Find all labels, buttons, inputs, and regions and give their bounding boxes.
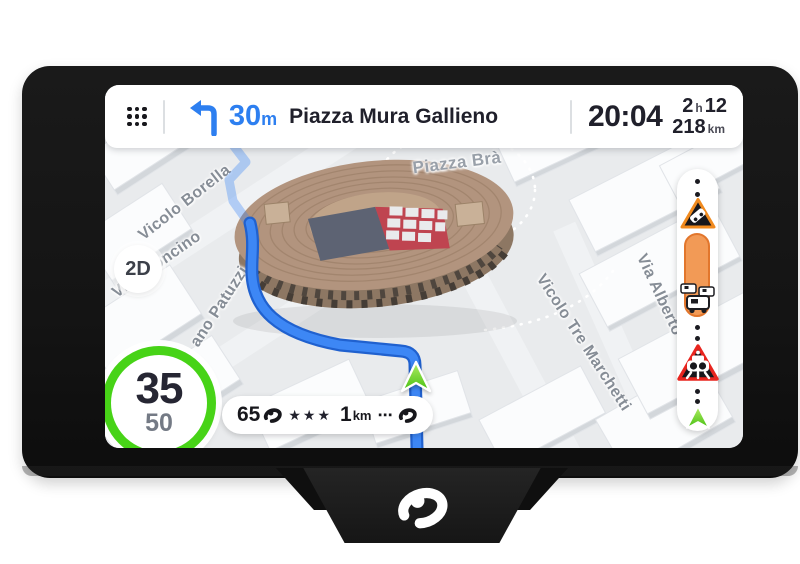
eta-distance: 218km	[672, 117, 727, 138]
alert-speed-limit: 65	[237, 403, 260, 427]
current-speed: 35	[136, 370, 183, 407]
confirmation-stars: ★★★	[288, 407, 332, 424]
clock: 20:04	[588, 100, 662, 134]
route-alert-bar[interactable]	[677, 169, 718, 431]
coyote-eye-icon	[397, 406, 418, 424]
alert-distance: 1	[340, 403, 352, 427]
eta-block: 2h12 218km	[672, 96, 727, 138]
next-street-name[interactable]: Piazza Mura Gallieno	[289, 105, 554, 129]
position-arrow-icon	[685, 405, 711, 430]
coyote-logo-icon	[393, 482, 451, 531]
turn-left-arrow-icon[interactable]	[187, 98, 221, 136]
grid-menu-icon[interactable]	[127, 107, 147, 127]
alert-distance-unit: km	[353, 408, 372, 423]
eta-duration: 2h12	[682, 96, 727, 117]
speed-limit: 50	[145, 411, 173, 436]
route-dot	[695, 179, 700, 184]
divider	[570, 100, 572, 134]
traffic-jam-icon	[678, 281, 718, 315]
more-alerts-dots: ⋯	[378, 406, 394, 424]
divider	[163, 100, 165, 134]
map-view-2d-button[interactable]: 2D	[114, 245, 162, 293]
alert-pill[interactable]: 65 ★★★ 1 km ⋯	[222, 396, 433, 434]
device-mount-base	[293, 468, 551, 543]
top-bar: 30m Piazza Mura Gallieno 20:04 2h12 218k…	[105, 85, 743, 148]
accident-warning-icon	[680, 197, 716, 230]
route-dot	[695, 325, 700, 330]
route-dot	[695, 336, 700, 341]
route-dot	[695, 399, 700, 404]
screen: Vicolo Borella Via Leoncino ano Patuzzi …	[105, 85, 743, 448]
maneuver-distance[interactable]: 30m	[229, 102, 277, 131]
route-dot	[695, 389, 700, 394]
speed-camera-icon	[677, 343, 719, 383]
page: Vicolo Borella Via Leoncino ano Patuzzi …	[0, 0, 800, 564]
coyote-eye-icon	[262, 406, 283, 424]
